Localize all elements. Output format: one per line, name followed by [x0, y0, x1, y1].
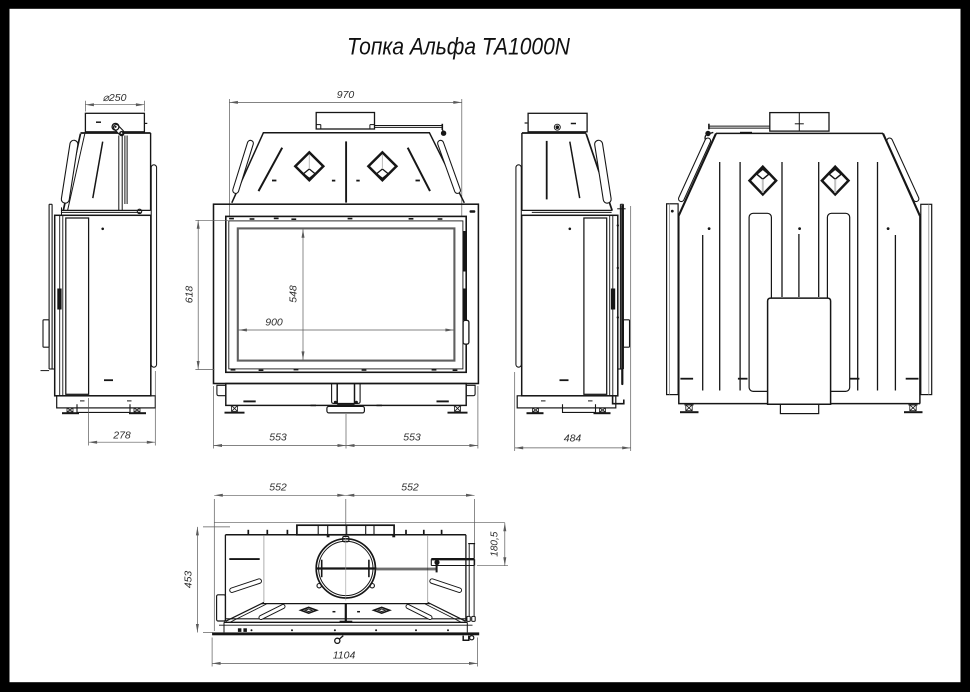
- svg-text:548: 548: [288, 285, 300, 303]
- svg-text:453: 453: [183, 571, 195, 589]
- svg-text:180,5: 180,5: [490, 531, 501, 556]
- svg-text:552: 552: [269, 482, 287, 494]
- svg-text:553: 553: [269, 432, 287, 444]
- svg-text:278: 278: [112, 430, 131, 442]
- svg-text:618: 618: [183, 286, 195, 304]
- svg-text:Топка Альфа ТА1000N: Топка Альфа ТА1000N: [347, 34, 570, 61]
- svg-text:⌀250: ⌀250: [103, 92, 127, 104]
- svg-text:552: 552: [401, 482, 419, 494]
- svg-text:970: 970: [337, 89, 355, 101]
- svg-text:553: 553: [403, 432, 421, 444]
- svg-text:900: 900: [265, 317, 283, 329]
- svg-text:1104: 1104: [333, 649, 356, 661]
- svg-text:484: 484: [564, 433, 582, 445]
